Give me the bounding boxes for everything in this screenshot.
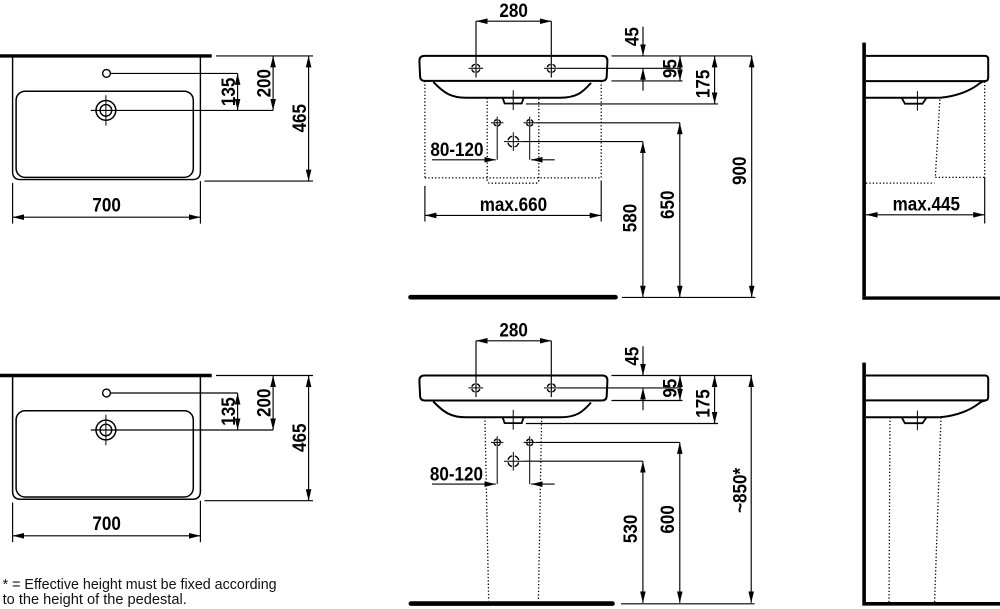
svg-text:to the height of the pedestal.: to the height of the pedestal. (3, 592, 187, 608)
svg-text:650: 650 (656, 191, 678, 219)
svg-text:45: 45 (620, 27, 642, 46)
svg-text:* = Effective height must be f: * = Effective height must be fixed accor… (3, 577, 277, 593)
svg-text:530: 530 (619, 515, 641, 543)
svg-text:95: 95 (658, 59, 680, 78)
svg-text:200: 200 (252, 389, 274, 417)
svg-text:135: 135 (217, 397, 239, 425)
svg-text:465: 465 (288, 424, 310, 452)
svg-text:max.660: max.660 (480, 193, 547, 215)
svg-text:600: 600 (656, 505, 678, 533)
svg-text:175: 175 (692, 70, 714, 98)
svg-text:900: 900 (728, 157, 750, 185)
svg-text:700: 700 (92, 193, 120, 215)
svg-text:45: 45 (620, 347, 642, 366)
svg-text:175: 175 (692, 389, 714, 417)
svg-text:max.445: max.445 (893, 192, 960, 214)
svg-text:200: 200 (252, 69, 274, 97)
svg-text:135: 135 (217, 78, 239, 106)
svg-text:280: 280 (499, 0, 527, 21)
svg-text:280: 280 (499, 319, 527, 341)
svg-text:80-120: 80-120 (430, 138, 483, 160)
svg-text:465: 465 (288, 104, 310, 132)
svg-text:580: 580 (618, 204, 640, 232)
svg-text:95: 95 (658, 379, 680, 398)
svg-text:80-120: 80-120 (430, 462, 483, 484)
svg-text:~850*: ~850* (729, 467, 751, 513)
svg-text:700: 700 (92, 512, 120, 534)
